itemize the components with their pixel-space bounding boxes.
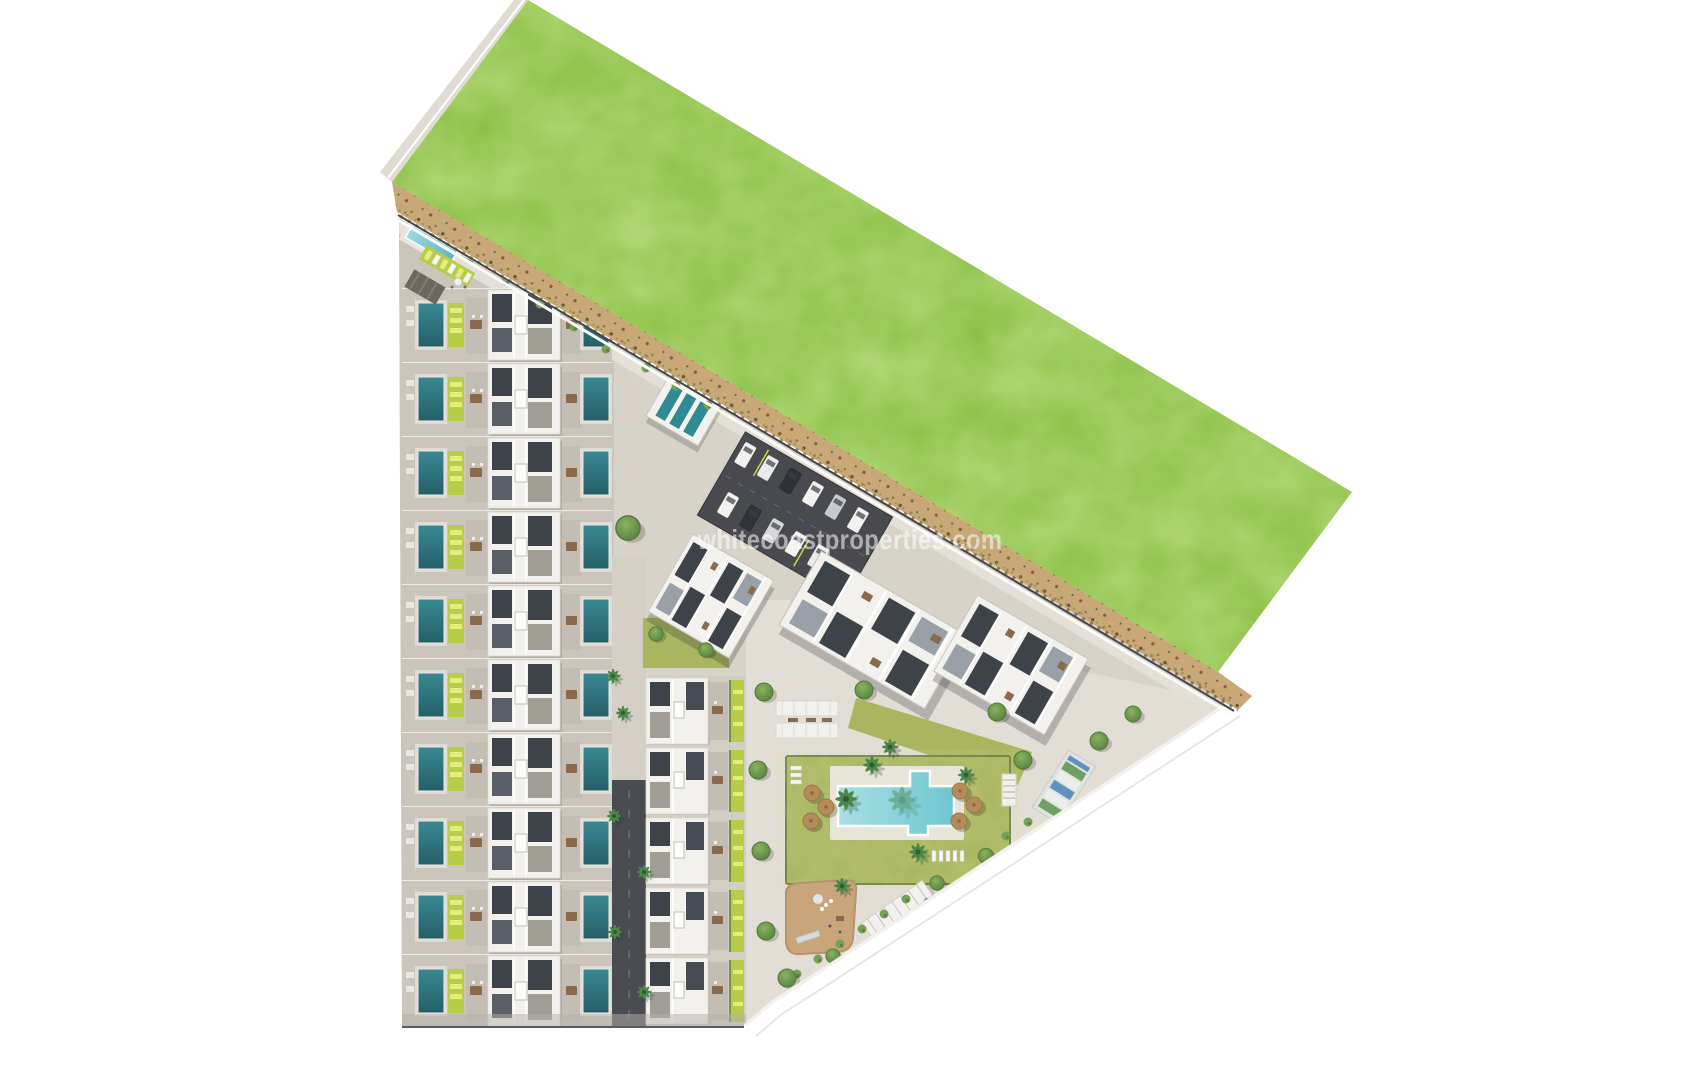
site-plan-image: whitecoastproperties.com [0,0,1700,1080]
pergola-bench [788,718,798,722]
townhouse-row-center [646,676,746,746]
site-bottom-band [402,1014,746,1028]
watermark-text: whitecoastproperties.com [697,524,1003,555]
townhouse-row-center [646,886,746,956]
townhouse-row [402,362,612,436]
garden-west-path [746,600,790,1028]
townhouse-row [402,658,612,732]
townhouse-row [402,806,612,880]
sun-loungers-lawn [791,766,802,784]
townhouse-row-center [646,746,746,816]
site-plan-page: whitecoastproperties.com [0,0,1700,1080]
townhouse-row [402,732,612,806]
playground-dome [813,894,823,904]
west-townhouse-strip [402,288,612,1028]
townhouse-row [402,584,612,658]
upper-access-road [612,556,646,782]
townhouse-row-center [646,816,746,886]
pergola-bench [822,718,832,722]
townhouse-row [402,880,612,954]
townhouse-row [402,510,612,584]
pergola-bench [806,718,816,722]
townhouse-row [402,436,612,510]
outdoor-table [454,278,462,286]
garden-trellis [1002,774,1016,806]
center-townhouse-column [646,676,746,1026]
